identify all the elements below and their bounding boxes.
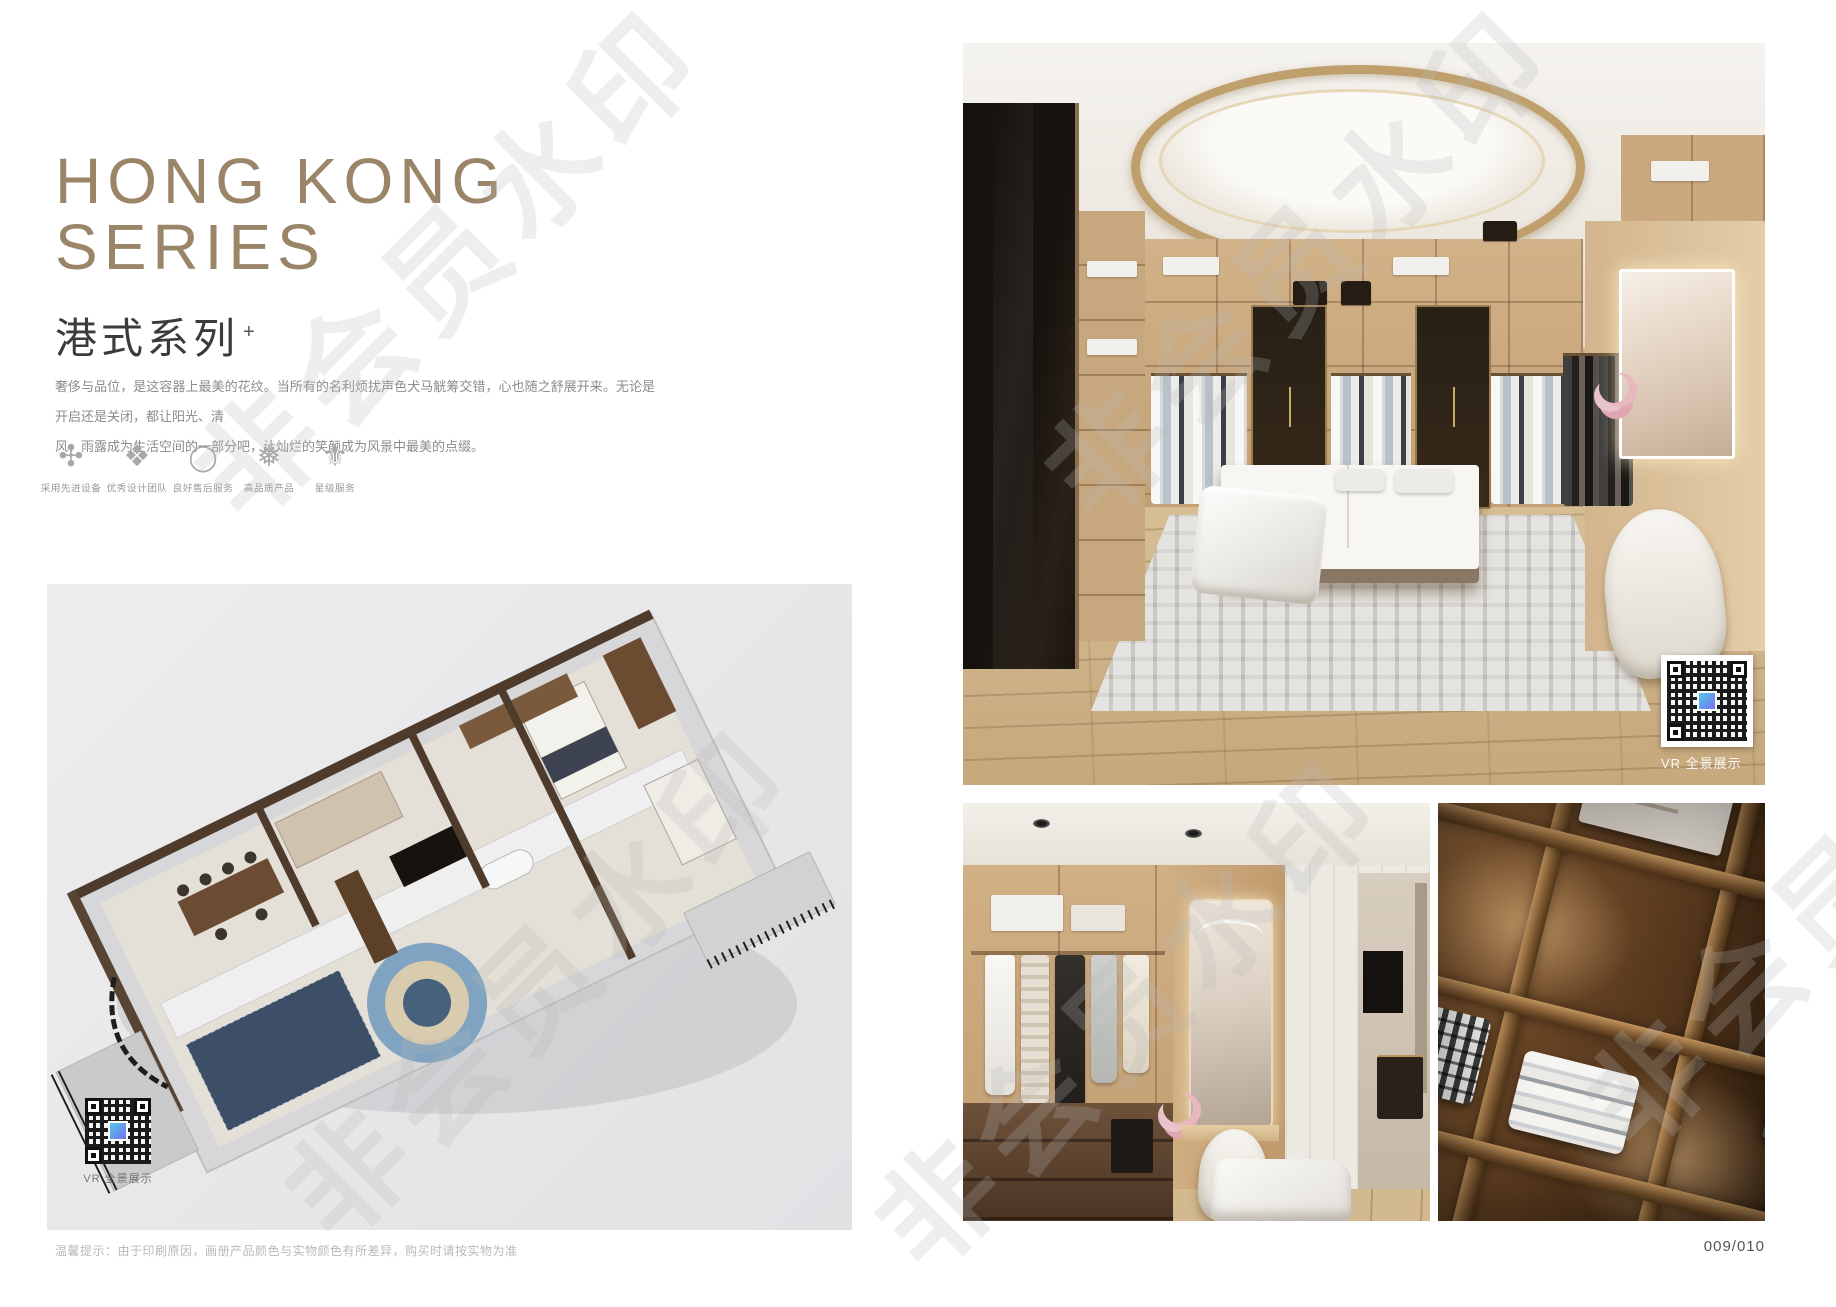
bed-corner-blanket xyxy=(1211,1159,1351,1221)
feature-icon-row: ✣ 采用先进设备 ❖ 优秀设计团队 ◯ 良好售后服务 ❅ 高品质产品 ⚜ 星级服… xyxy=(38,438,368,496)
shelf-detail-photo xyxy=(1438,803,1765,1221)
floorplan-illustration xyxy=(47,584,852,1230)
hanging-garment xyxy=(1091,955,1117,1083)
upper-cabinet xyxy=(1621,135,1765,235)
feature-label: 高品质产品 xyxy=(239,482,300,496)
walk-in-closet-photo: VR 全景展示 xyxy=(963,43,1765,785)
series-title-cn: 港式系列+ xyxy=(55,305,259,366)
series-title-en: HONG KONG SERIES xyxy=(55,148,507,280)
folded-clothes xyxy=(1393,257,1449,275)
feature-label: 星级服务 xyxy=(305,482,366,496)
qr-finder-icon xyxy=(1667,724,1684,741)
draped-blanket xyxy=(1190,485,1329,606)
main-photo-vr-qr-tile xyxy=(1661,655,1753,747)
qr-finder-icon xyxy=(1667,661,1684,678)
dressing-area-photo xyxy=(963,803,1430,1221)
snowflake-icon: ❅ xyxy=(236,438,302,476)
description-line-1: 奢侈与品位，是这容器上最美的花纹。当所有的名利烦扰声色犬马觥筹交错，心也随之舒展… xyxy=(55,372,655,432)
feature-advanced-equipment: ✣ 采用先进设备 xyxy=(38,438,104,496)
qr-logo-icon xyxy=(108,1121,128,1141)
qr-finder-icon xyxy=(85,1098,102,1115)
folded-linen xyxy=(1087,339,1137,355)
pinwheel-flower-icon: ✣ xyxy=(38,438,104,476)
series-title-line2: SERIES xyxy=(55,214,507,280)
hanging-garment xyxy=(985,955,1015,1095)
vanity-mirror xyxy=(1189,899,1273,1129)
main-photo-vr-label: VR 全景展示 xyxy=(1661,753,1742,772)
feature-star-service: ⚜ 星级服务 xyxy=(302,438,368,496)
feature-quality-product: ❅ 高品质产品 xyxy=(236,438,302,496)
handbag xyxy=(1341,281,1371,305)
folded-clothes xyxy=(1163,257,1219,275)
black-storage-box xyxy=(1111,1119,1153,1173)
qr-finder-icon xyxy=(85,1147,102,1164)
pillow xyxy=(1335,469,1385,491)
storage-box xyxy=(991,895,1063,931)
series-title-line1: HONG KONG xyxy=(55,148,507,214)
floorplan-vr-qr-code xyxy=(85,1098,151,1164)
vanity-mirror xyxy=(1619,269,1735,459)
pink-flowers xyxy=(1163,1093,1193,1123)
pink-flowers xyxy=(1599,373,1629,403)
enso-ring-icon: ◯ xyxy=(170,438,236,476)
feature-label: 采用先进设备 xyxy=(41,482,102,496)
qr-finder-icon xyxy=(134,1098,151,1115)
diamond-ornament-icon: ❖ xyxy=(104,438,170,476)
photo-vignette xyxy=(1438,803,1765,1221)
fleur-ornament-icon: ⚜ xyxy=(302,438,368,476)
feature-label: 优秀设计团队 xyxy=(107,482,168,496)
ceiling-spotlight-icon xyxy=(1185,829,1202,838)
round-ceiling-cove-inner xyxy=(1159,89,1545,233)
print-disclaimer-note: 温馨提示：由于印刷原因，画册产品颜色与实物颜色有所差异，购买时请按实物为准 xyxy=(55,1242,518,1259)
folded-linen xyxy=(1087,261,1137,277)
plus-mark: + xyxy=(243,321,259,343)
isometric-floorplan-render: VR 全景展示 xyxy=(47,584,852,1230)
hanging-garment xyxy=(1021,955,1049,1105)
floorplan-vr-label: VR 全景展示 xyxy=(67,1170,169,1186)
storage-box xyxy=(1651,161,1709,181)
main-photo-vr-qr-code xyxy=(1667,661,1747,741)
page-number: 009/010 xyxy=(1704,1238,1765,1255)
pillow xyxy=(1395,469,1453,493)
handbag xyxy=(1483,221,1517,241)
hanging-garment xyxy=(1055,955,1085,1115)
feature-after-sales: ◯ 良好售后服务 xyxy=(170,438,236,496)
feature-label: 良好售后服务 xyxy=(173,482,234,496)
storage-box xyxy=(1071,905,1125,931)
tv-screen xyxy=(1363,951,1403,1013)
hanging-garment xyxy=(1123,955,1149,1073)
qr-logo-icon xyxy=(1697,691,1717,711)
ceiling-spotlight-icon xyxy=(1033,819,1050,828)
qr-finder-icon xyxy=(1730,661,1747,678)
handbag xyxy=(1293,281,1327,305)
dark-glass-wardrobe xyxy=(963,103,1079,669)
feature-design-team: ❖ 优秀设计团队 xyxy=(104,438,170,496)
dark-nightstand xyxy=(1377,1055,1423,1119)
